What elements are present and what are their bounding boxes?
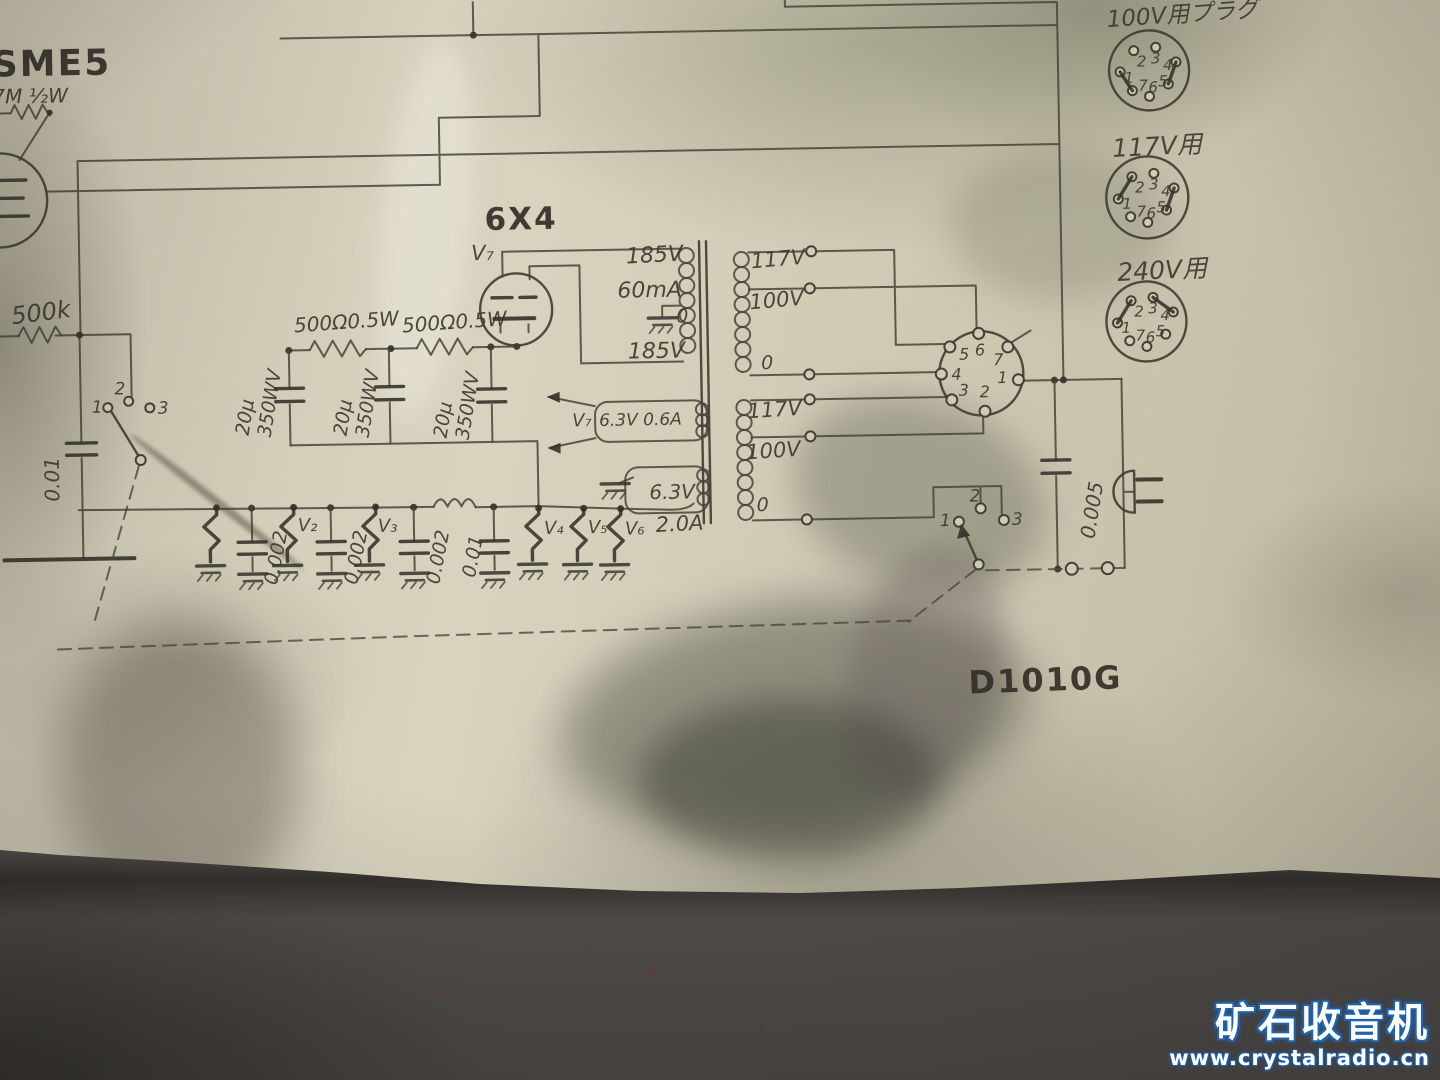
- plug-pin-number: 5: [1156, 198, 1166, 216]
- label-volume-pot: 500k: [10, 295, 74, 330]
- plug-pin-number: 1: [1122, 195, 1132, 213]
- filter-capacitors: 20μ 350WV 20μ 350WV 20μ 350WV: [230, 346, 539, 513]
- plug-pin-number: 6: [1146, 204, 1156, 222]
- model-label: D1010G: [968, 658, 1123, 701]
- label-coupling-cap: 0.01: [40, 457, 65, 502]
- plug-pin-number: 3: [1149, 175, 1159, 193]
- plug-pin-number: 7: [1136, 326, 1146, 344]
- label-filter-cap-rating: 350WV: [352, 366, 385, 439]
- label-hv-top: 185V: [625, 241, 685, 269]
- label-heater-current: 2.0A: [655, 511, 704, 537]
- socket-pin-number: 5: [959, 345, 970, 364]
- label-dropper-resistor: 500Ω0.5W: [401, 306, 509, 337]
- voltage-plug-240v: 240V用 2 3 4 1 7 6 5: [1105, 253, 1211, 362]
- switch-contact-label: 3: [1012, 510, 1023, 530]
- switch-contact-label: 3: [158, 399, 169, 419]
- voltage-plug-117v: 117V用 2 3 4 1 7 6 5: [1105, 129, 1206, 239]
- plug-pin-number: 6: [1146, 328, 1156, 346]
- socket-pin-number: 3: [958, 381, 969, 400]
- socket-pin-number: 1: [997, 368, 1008, 387]
- selector-socket: 5 6 7 4 3 2 1: [812, 246, 1122, 436]
- plug-pin-number: 1: [1121, 319, 1131, 337]
- label-heater-ref: V₃: [378, 516, 398, 537]
- voltage-plug-100v: 100V用プラグ 2 3 4 1 7 6 5: [1106, 0, 1265, 111]
- power-transformer: 185V 60mA 0 185V V₇ 6.3V 0.6A: [544, 239, 821, 539]
- label-heater-ref: V₂: [298, 515, 318, 536]
- label-heater-v7-ref: V₇: [572, 410, 593, 431]
- switch-contact-label: 1: [940, 511, 951, 531]
- label-rectifier-type: 6X4: [484, 201, 558, 238]
- label-grid-resistor: 7M ½W: [0, 83, 69, 108]
- label-hv-tap: 0: [676, 305, 688, 327]
- plug-pin-number: 3: [1151, 49, 1161, 67]
- label-primary-117: 117V: [750, 245, 808, 274]
- plug-pin-number: 7: [1138, 76, 1148, 94]
- watermark-title: 矿石收音机: [1169, 1002, 1430, 1044]
- ac-plug: [1111, 378, 1162, 568]
- label-dropper-resistor: 500Ω0.5W: [293, 306, 401, 337]
- label-primary-117: 117V: [747, 396, 805, 424]
- label-bypass-cap: 0.002: [260, 529, 292, 587]
- plug-pin-number: 6: [1148, 78, 1158, 96]
- switch-contact-label: 1: [92, 398, 103, 418]
- switch-contact-label: 2: [969, 486, 980, 506]
- plug-pin-number: 5: [1155, 322, 1165, 340]
- table-specks: [180, 952, 184, 956]
- label-rectifier-ref: V₇: [471, 241, 495, 265]
- plug-pin-number: 7: [1136, 202, 1146, 220]
- label-heater-ref: V₆: [625, 518, 645, 539]
- plug-pin-number: 2: [1134, 303, 1144, 321]
- label-input-tube: SME5: [0, 42, 112, 85]
- tone-switch: 1 2 3: [89, 379, 172, 625]
- plug-label: 240V用: [1117, 253, 1210, 287]
- switch-contact-label: 2: [114, 379, 125, 399]
- socket-pin-number: 7: [993, 350, 1004, 369]
- plug-pin-number: 2: [1137, 52, 1147, 70]
- heater-winding-v7: V₇ 6.3V 0.6A: [547, 389, 709, 454]
- label-primary-0: 0: [756, 494, 768, 516]
- label-hv-current: 60mA: [617, 278, 682, 304]
- watermark: 矿石收音机 www.crystalradio.cn: [1169, 1002, 1430, 1070]
- label-heater-v7-rating: 6.3V 0.6A: [599, 410, 682, 431]
- line-capacitor: 0.005: [1040, 379, 1109, 573]
- photo-of-schematic: SME5 7M ½W 500k 0.01 1 2 3: [0, 0, 1440, 1080]
- plug-pin-number: 3: [1148, 299, 1158, 317]
- label-heater-ref: V₄: [544, 518, 565, 539]
- label-bypass-cap: 0.002: [422, 528, 454, 586]
- input-tube-section: SME5 7M ½W: [0, 42, 114, 248]
- plug-pin-number: 1: [1124, 69, 1134, 87]
- chassis-line: [58, 621, 911, 650]
- label-heater-rating: 6.3V: [649, 479, 696, 504]
- label-filter-cap-rating: 350WV: [452, 368, 485, 441]
- power-switch: 1 2 3: [811, 484, 1125, 623]
- watermark-url: www.crystalradio.cn: [1169, 1046, 1430, 1070]
- label-heater-ref: V₅: [588, 517, 608, 538]
- plug-label: 100V用プラグ: [1106, 0, 1263, 33]
- label-hv-bottom: 185V: [628, 338, 687, 364]
- b-plus-rail: 500Ω0.5W 500Ω0.5W: [285, 304, 521, 358]
- socket-pin-number: 2: [979, 382, 990, 401]
- label-primary-0: 0: [761, 352, 773, 374]
- volume-control: 500k 0.01: [0, 294, 134, 560]
- label-primary-100: 100V: [749, 286, 807, 315]
- plug-pin-number: 5: [1158, 72, 1168, 90]
- heater-line: V₂ V₃ V₄ V₅ V₆ 0.002 0.002 0.002 0.01: [79, 495, 695, 595]
- plug-pin-number: 2: [1135, 178, 1145, 196]
- socket-pin-number: 6: [975, 340, 986, 359]
- label-primary-100: 100V: [745, 437, 803, 465]
- heater-winding-main: 6.3V: [601, 466, 710, 514]
- top-wiring: [43, 0, 1208, 398]
- label-line-cap: 0.005: [1075, 480, 1108, 540]
